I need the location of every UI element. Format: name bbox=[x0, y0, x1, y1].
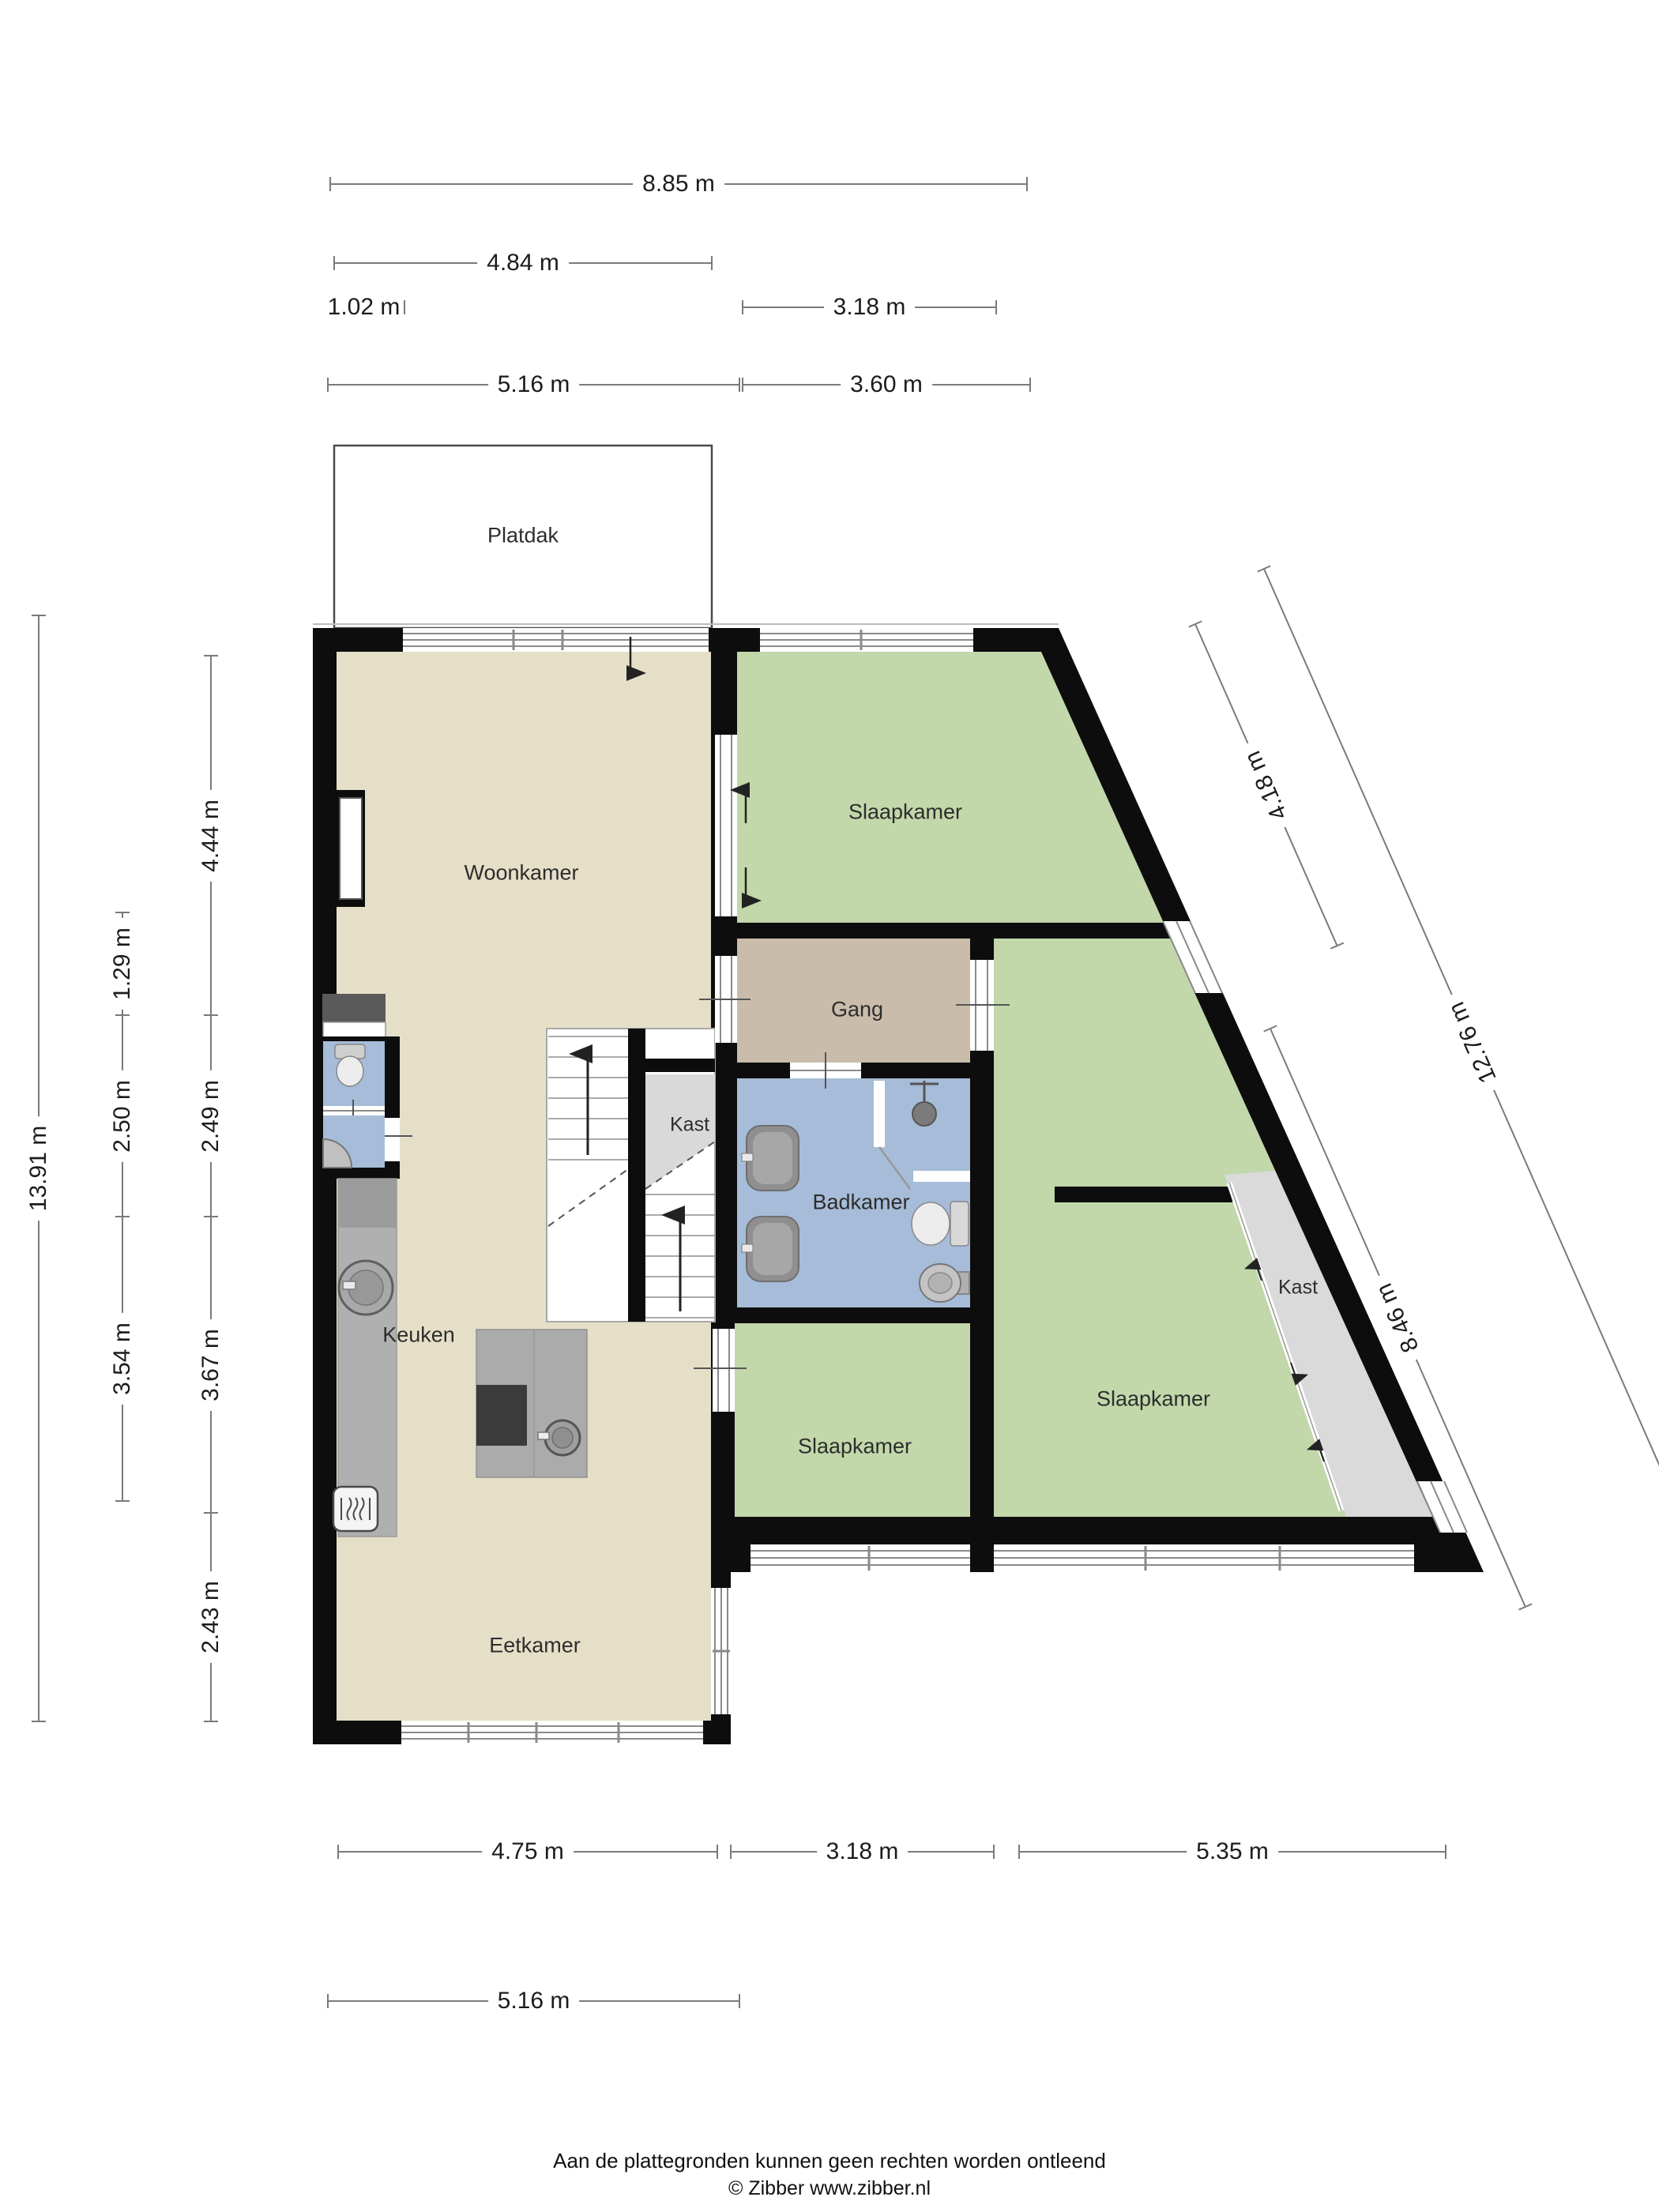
room-label-platdak: Platdak bbox=[487, 524, 559, 548]
stairs bbox=[547, 1029, 715, 1322]
oven-icon bbox=[333, 1487, 378, 1531]
floor-bedroom-top bbox=[737, 652, 1164, 923]
footer-disclaimer: Aan de plattegronden kunnen geen rechten… bbox=[553, 2149, 1106, 2173]
window-top-1 bbox=[403, 628, 709, 652]
kitchen-island bbox=[476, 1330, 587, 1477]
footer-copyright: © Zibber www.zibber.nl bbox=[728, 2177, 931, 2200]
partial-wall bbox=[1055, 1187, 1232, 1202]
window-top-2 bbox=[760, 628, 973, 652]
kitchen-counter bbox=[338, 1179, 397, 1537]
window-bottom-bedrooms bbox=[750, 1544, 1414, 1572]
room-label-eetkamer: Eetkamer bbox=[489, 1634, 581, 1658]
room-label-slaapkamer-top: Slaapkamer bbox=[848, 800, 962, 825]
room-label-keuken: Keuken bbox=[382, 1323, 455, 1348]
room-label-woonkamer: Woonkamer bbox=[464, 861, 578, 886]
room-label-slaapkamer-right: Slaapkamer bbox=[1097, 1387, 1210, 1412]
room-label-badkamer: Badkamer bbox=[812, 1191, 909, 1215]
room-label-kast-stairs: Kast bbox=[670, 1114, 709, 1137]
floorplan-page: Platdak Woonkamer Slaapkamer Gang Kast B… bbox=[0, 0, 1659, 2212]
floorplan-drawing bbox=[0, 0, 1659, 2212]
window-eetkamer-bottom bbox=[401, 1721, 703, 1744]
window-eetkamer-right bbox=[711, 1588, 732, 1714]
chimney bbox=[313, 790, 365, 907]
room-label-kast-right: Kast bbox=[1278, 1277, 1318, 1300]
floor-bedroom-mid bbox=[735, 1323, 970, 1517]
room-label-gang: Gang bbox=[831, 998, 883, 1022]
room-label-slaapkamer-mid: Slaapkamer bbox=[798, 1435, 912, 1459]
